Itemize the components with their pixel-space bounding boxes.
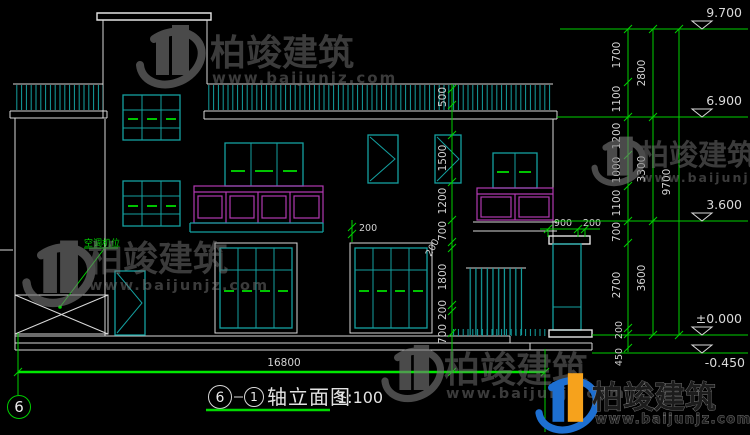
rdim-700: 700	[611, 222, 623, 242]
watermark-logo	[27, 241, 92, 303]
dim-700a: 700	[437, 221, 449, 241]
dim-200-chimney: 200	[583, 218, 601, 229]
watermark-url: www.baijunjz.com	[212, 69, 397, 87]
window-center-3f	[225, 143, 303, 186]
level-9700: 9.700	[706, 5, 742, 20]
watermark-top: 柏竣建筑 www.baijunjz.com	[140, 25, 397, 87]
left-parapet-band	[10, 111, 107, 118]
window-tower-2f	[123, 181, 180, 226]
balcony-rail-right	[473, 188, 557, 231]
rdim-200: 200	[614, 321, 625, 339]
watermark-url: www.baijunjz.com	[641, 170, 750, 185]
watermark-url: www.baijunjz.com	[595, 412, 750, 427]
dim-900: 900	[554, 218, 572, 229]
window-right-3f	[493, 153, 537, 188]
watermark-corner-logo: 柏竣建筑 www.baijunjz.com	[539, 373, 750, 430]
watermark-brand: 柏竣建筑	[444, 350, 588, 391]
level-0000: ±0.000	[696, 311, 742, 326]
dim-1200: 1200	[437, 188, 449, 215]
terrace-fence	[452, 329, 547, 336]
dim-500: 500	[437, 87, 449, 107]
plinth	[15, 336, 592, 350]
watermark-brand: 柏竣建筑	[88, 239, 228, 280]
watermark-brand: 柏竣建筑	[640, 138, 750, 172]
right-dim-chains: 1700 1100 1200 1000 1100 700 2700 200 45…	[555, 25, 683, 366]
window-2f-right	[350, 243, 432, 333]
left-roof-railing	[13, 85, 103, 110]
main-roof-railing	[208, 85, 552, 110]
rdim-450: 450	[614, 348, 625, 366]
rdim-1100b: 1100	[611, 190, 623, 217]
dim-1800: 1800	[437, 264, 449, 291]
axis-bubble-label: 6	[14, 398, 24, 416]
cad-canvas: 空调机位 16800 500 1500 1200 700 200 1800 20…	[0, 0, 750, 435]
level-markers: 9.700 6.900 3.600 ±0.000 -0.450	[679, 5, 748, 370]
window-tower-3f	[123, 95, 180, 140]
watermark-logo	[140, 25, 202, 84]
chimney	[549, 236, 592, 337]
level-m450: -0.450	[705, 355, 745, 370]
title-axis-to: 1	[250, 390, 258, 404]
dim-1500: 1500	[437, 145, 449, 172]
windows	[15, 95, 592, 337]
rdim-1700: 1700	[611, 42, 623, 69]
window-casement-a	[368, 135, 398, 183]
elevation-drawing: 空调机位 16800 500 1500 1200 700 200 1800 20…	[0, 0, 750, 435]
dim-window-offset: 200	[359, 223, 377, 234]
watermark-url: www.baijunjz.com	[89, 278, 269, 294]
level-3600: 3.600	[706, 197, 742, 212]
watermark-bottom: 柏竣建筑 www.baijunjz.com	[385, 345, 626, 402]
dim-700b: 700	[437, 324, 449, 344]
watermark-brand: 柏竣建筑	[210, 33, 354, 74]
title-axis-from: 6	[216, 390, 225, 406]
grille-window	[466, 268, 526, 335]
rdim-1100a: 1100	[611, 86, 623, 113]
rdim-2800: 2800	[636, 60, 648, 87]
dim-16800: 16800	[267, 357, 300, 369]
mid-dim-chain: 500 1500 1200 700 200 1800 200 700	[424, 84, 456, 376]
tower-cap	[97, 13, 211, 20]
drawing-scale: 1:100	[337, 388, 383, 407]
rdim-2700: 2700	[611, 272, 623, 299]
axis-bubble-left: 6	[8, 396, 31, 419]
level-6900: 6.900	[706, 93, 742, 108]
watermark-brand: 柏竣建筑	[592, 380, 716, 416]
dim-200b: 200	[437, 300, 449, 320]
rdim-3600: 3600	[636, 265, 648, 292]
balcony-rail-center	[190, 186, 323, 232]
main-parapet-band	[204, 111, 557, 119]
title-block: 6 1 轴立面图 1:100	[206, 385, 383, 410]
